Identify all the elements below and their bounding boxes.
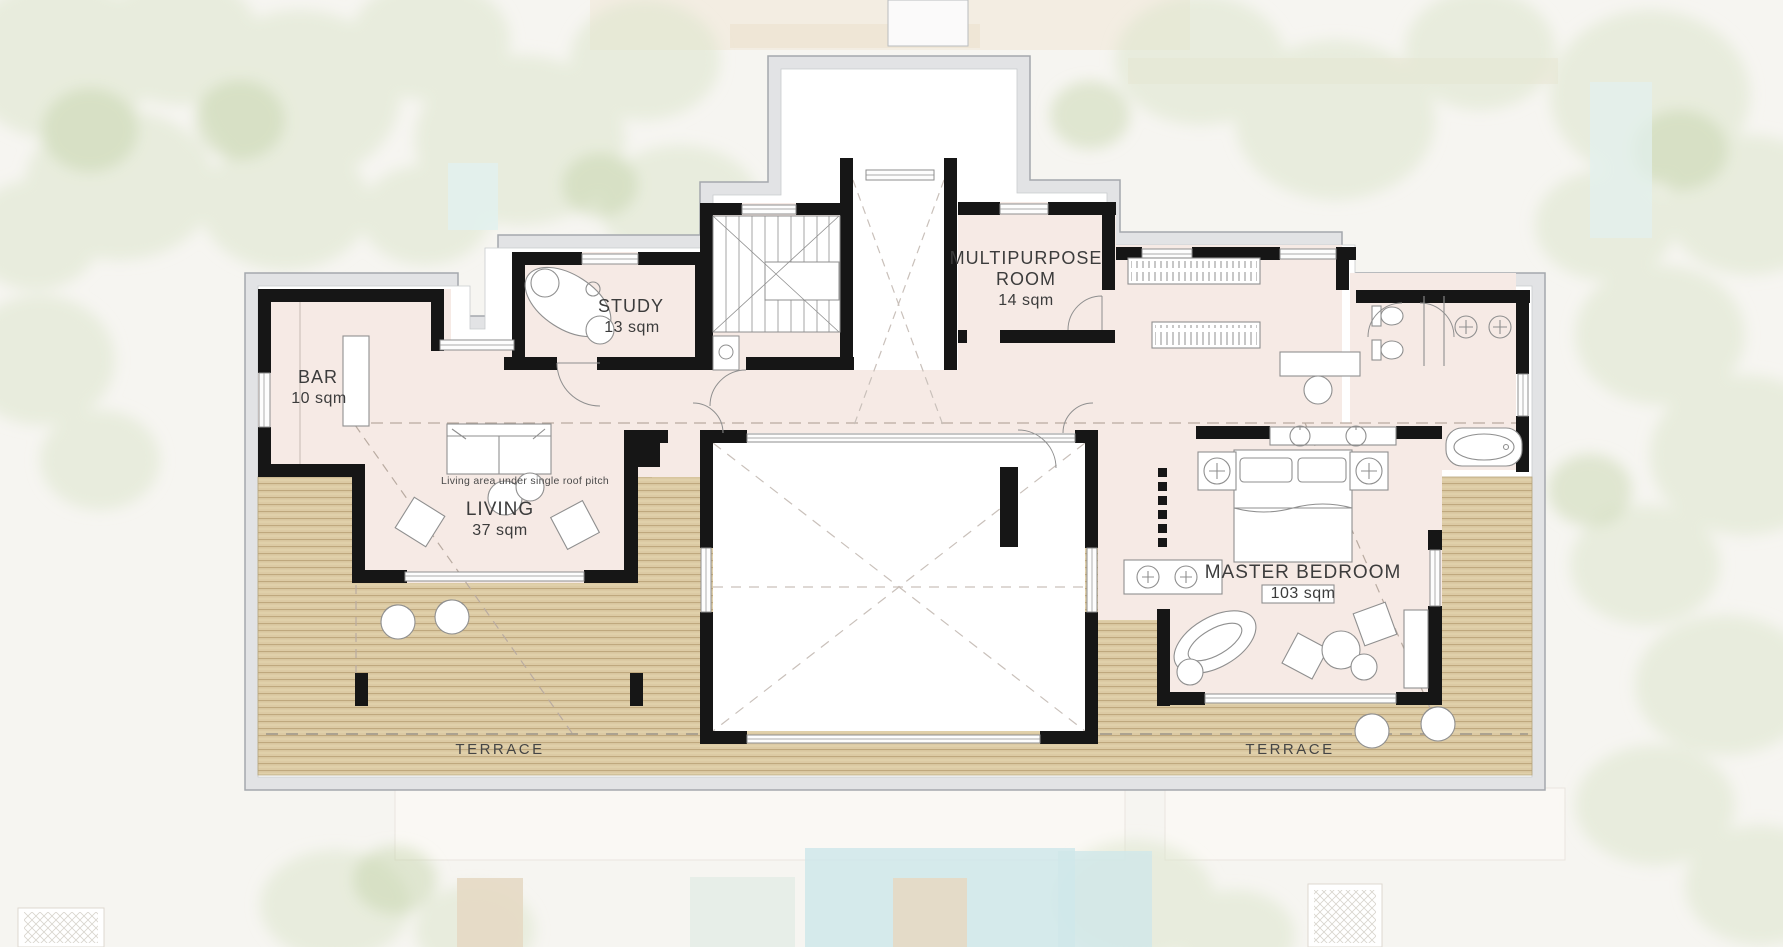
bench (1404, 610, 1428, 688)
label-multipurpose-area: 14 sqm (998, 292, 1053, 309)
deck-post (355, 673, 368, 706)
deck-post (630, 673, 643, 706)
bar-counter (343, 336, 369, 426)
label-study: STUDY (598, 296, 664, 316)
label-study-area: 13 sqm (604, 319, 659, 336)
floor-plan-page: BAR 10 sqm STUDY 13 sqm MULTIPURPOSE ROO… (0, 0, 1783, 947)
pool-top-right (1590, 82, 1652, 238)
label-living-note: Living area under single roof pitch (441, 475, 609, 487)
label-master-bedroom: MASTER BEDROOM (1205, 562, 1402, 583)
understair-closet (713, 336, 739, 370)
sofa (447, 424, 551, 474)
screen-panel-bottom-right (1308, 884, 1382, 947)
deck-bottom-center (893, 878, 967, 947)
label-living-area: 37 sqm (472, 522, 527, 539)
pool-bottom-right (1058, 851, 1152, 947)
pool-top-left (448, 163, 498, 230)
label-master-bedroom-area: 103 sqm (1271, 585, 1336, 602)
bathtub (1446, 428, 1522, 466)
screen-panel-bottom-left (18, 908, 104, 947)
deck-bottom-left (457, 878, 523, 947)
vanity-double-sink (1270, 426, 1396, 446)
skylight-box (888, 0, 968, 46)
label-living: LIVING (466, 499, 534, 520)
label-terrace-left: TERRACE (455, 741, 544, 758)
label-multipurpose-2: ROOM (996, 269, 1056, 289)
label-multipurpose-1: MULTIPURPOSE (950, 248, 1103, 268)
label-bar: BAR (298, 367, 338, 387)
void-shaft (853, 165, 944, 370)
label-terrace-right: TERRACE (1245, 741, 1334, 758)
garden-path-bottom-right (1165, 788, 1565, 860)
floor-plan-canvas: BAR 10 sqm STUDY 13 sqm MULTIPURPOSE ROO… (0, 0, 1783, 947)
label-bar-area: 10 sqm (291, 390, 346, 407)
